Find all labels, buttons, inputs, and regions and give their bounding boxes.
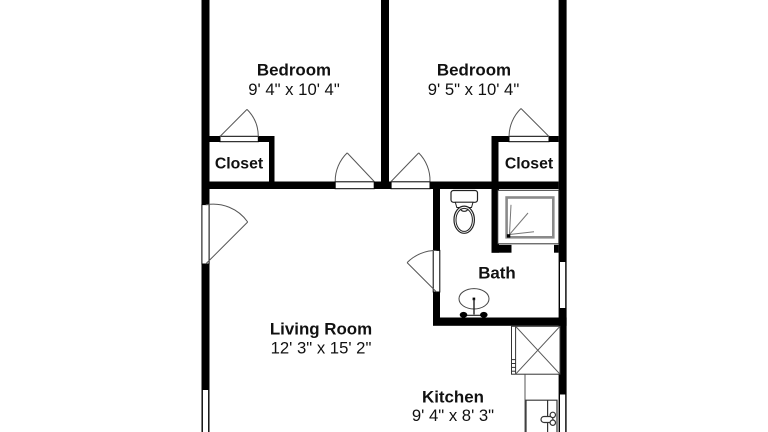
svg-text:Closet: Closet [215,155,264,172]
svg-text:9' 5" x 10' 4": 9' 5" x 10' 4" [428,80,520,99]
svg-text:Bath: Bath [478,264,516,283]
svg-text:Bedroom: Bedroom [437,61,511,80]
svg-text:9' 4" x 10' 4": 9' 4" x 10' 4" [248,80,340,99]
svg-text:Bedroom: Bedroom [257,61,331,80]
svg-text:9' 4" x 8' 3": 9' 4" x 8' 3" [412,406,494,425]
svg-text:Closet: Closet [505,155,554,172]
svg-text:Kitchen: Kitchen [422,387,484,406]
svg-text:12' 3" x 15' 2": 12' 3" x 15' 2" [271,338,372,357]
svg-text:Living Room: Living Room [270,320,372,339]
